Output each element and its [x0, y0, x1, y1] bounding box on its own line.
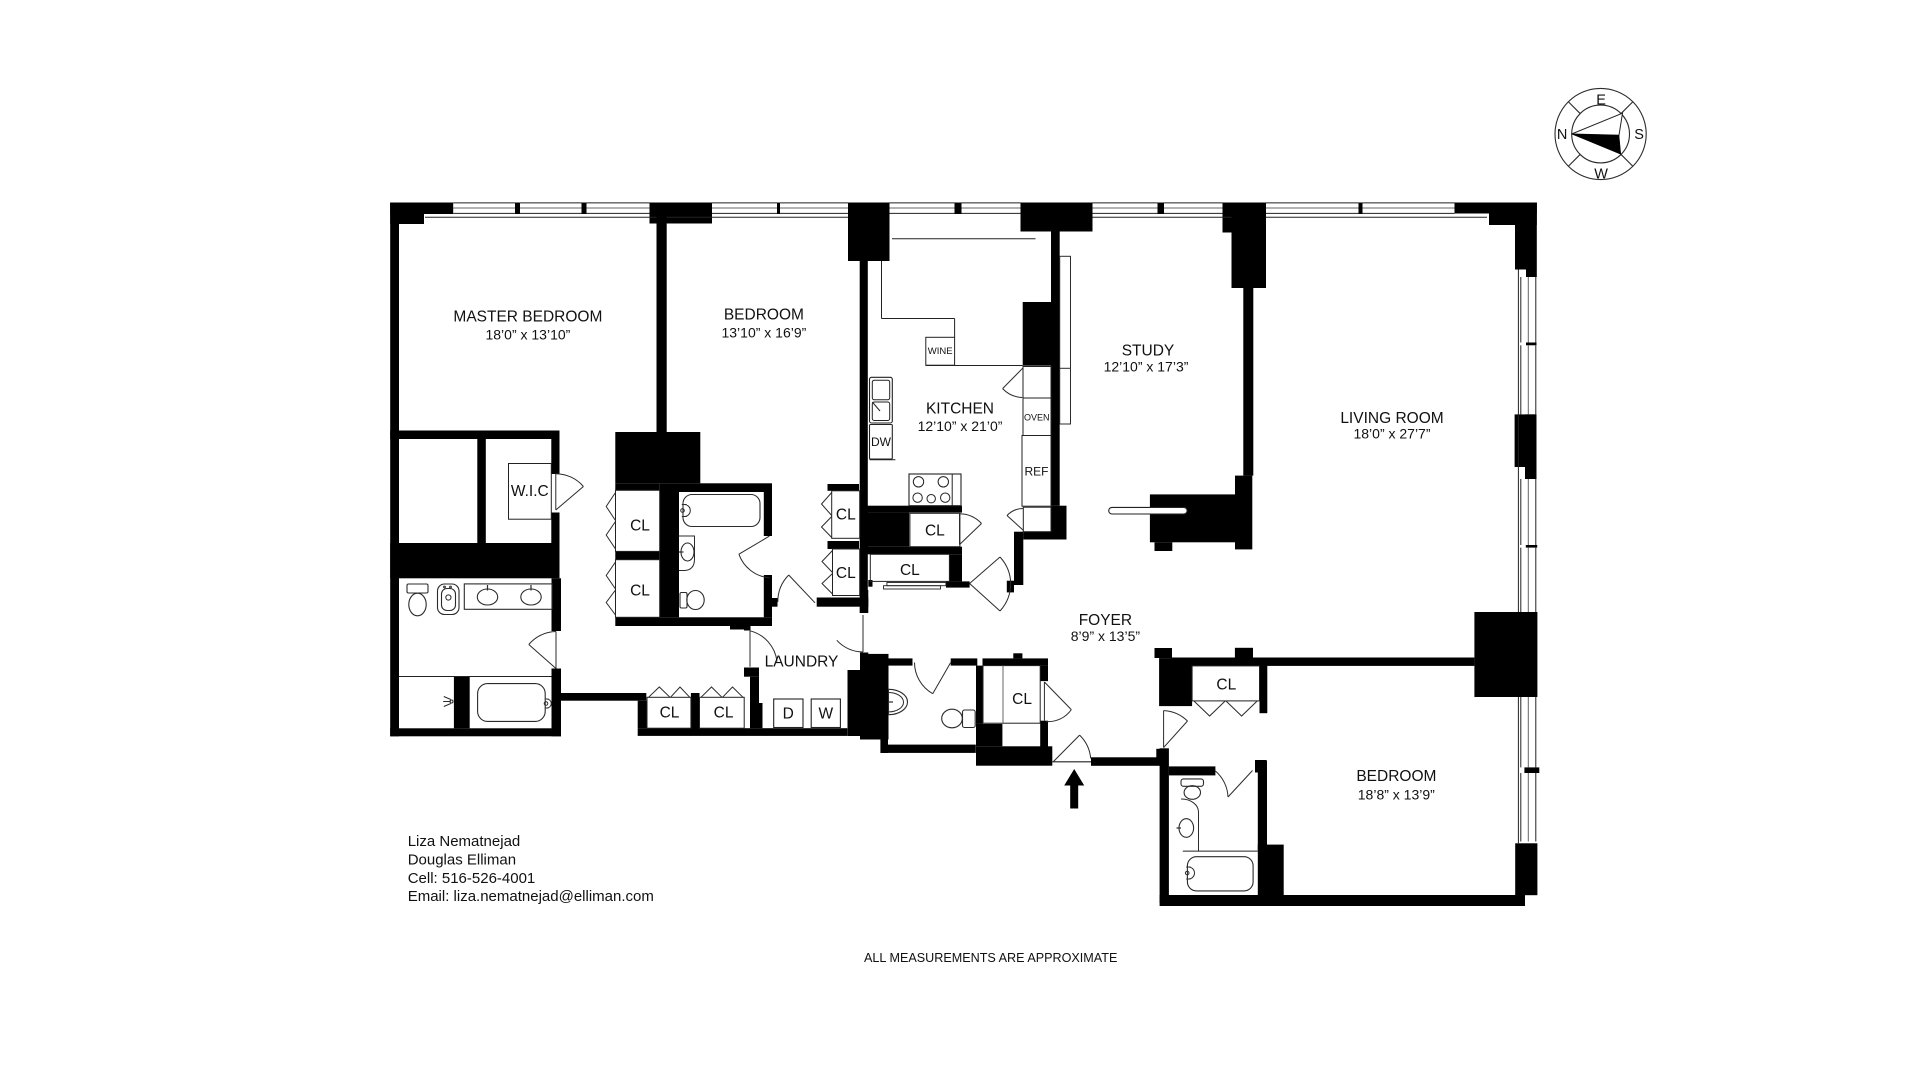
svg-text:18’8” x 13’9”: 18’8” x 13’9”: [1358, 786, 1435, 802]
svg-text:13’10” x 16’9”: 13’10” x 16’9”: [721, 324, 806, 340]
svg-text:KITCHEN: KITCHEN: [926, 401, 994, 418]
svg-text:Cell: 516-526-4001: Cell: 516-526-4001: [408, 870, 536, 887]
svg-text:ALL MEASUREMENTS ARE APPROXIMA: ALL MEASUREMENTS ARE APPROXIMATE: [864, 951, 1117, 965]
svg-text:Email: liza.nematnejad@elliman: Email: liza.nematnejad@elliman.com: [408, 888, 654, 905]
svg-text:LAUNDRY: LAUNDRY: [765, 653, 839, 670]
svg-text:CL: CL: [714, 704, 734, 721]
svg-text:CL: CL: [630, 583, 650, 600]
svg-text:Liza Nematnejad: Liza Nematnejad: [408, 833, 521, 850]
svg-text:W: W: [818, 705, 833, 722]
svg-text:CL: CL: [925, 523, 945, 540]
svg-text:D: D: [783, 705, 794, 722]
svg-text:18’0” x 27’7”: 18’0” x 27’7”: [1353, 426, 1430, 442]
svg-text:BEDROOM: BEDROOM: [724, 307, 804, 324]
svg-text:CL: CL: [630, 518, 650, 535]
svg-text:W: W: [1594, 167, 1608, 183]
svg-text:CL: CL: [836, 565, 856, 582]
svg-text:DW: DW: [871, 435, 892, 449]
svg-text:12’10” x 21’0”: 12’10” x 21’0”: [918, 418, 1003, 434]
svg-text:OVEN: OVEN: [1024, 413, 1050, 423]
svg-text:CL: CL: [1012, 691, 1032, 708]
svg-text:WINE: WINE: [928, 346, 953, 357]
svg-text:CL: CL: [1216, 677, 1236, 694]
svg-text:E: E: [1596, 93, 1606, 109]
svg-text:MASTER BEDROOM: MASTER BEDROOM: [453, 309, 602, 326]
svg-text:FOYER: FOYER: [1079, 612, 1132, 629]
svg-text:W.I.C: W.I.C: [511, 483, 549, 500]
svg-text:LIVING ROOM: LIVING ROOM: [1340, 410, 1443, 427]
svg-text:CL: CL: [900, 562, 920, 579]
svg-text:N: N: [1557, 127, 1567, 143]
svg-text:S: S: [1634, 127, 1644, 143]
svg-text:18’0” x 13’10”: 18’0” x 13’10”: [485, 326, 570, 342]
svg-text:CL: CL: [660, 704, 680, 721]
svg-text:CL: CL: [836, 507, 856, 524]
svg-text:REF: REF: [1025, 465, 1049, 479]
svg-text:12’10” x 17’3”: 12’10” x 17’3”: [1104, 358, 1189, 374]
svg-text:BEDROOM: BEDROOM: [1356, 768, 1436, 785]
svg-text:STUDY: STUDY: [1122, 342, 1175, 359]
svg-text:Douglas Elliman: Douglas Elliman: [408, 852, 516, 869]
svg-text:8’9” x 13’5”: 8’9” x 13’5”: [1071, 628, 1141, 644]
